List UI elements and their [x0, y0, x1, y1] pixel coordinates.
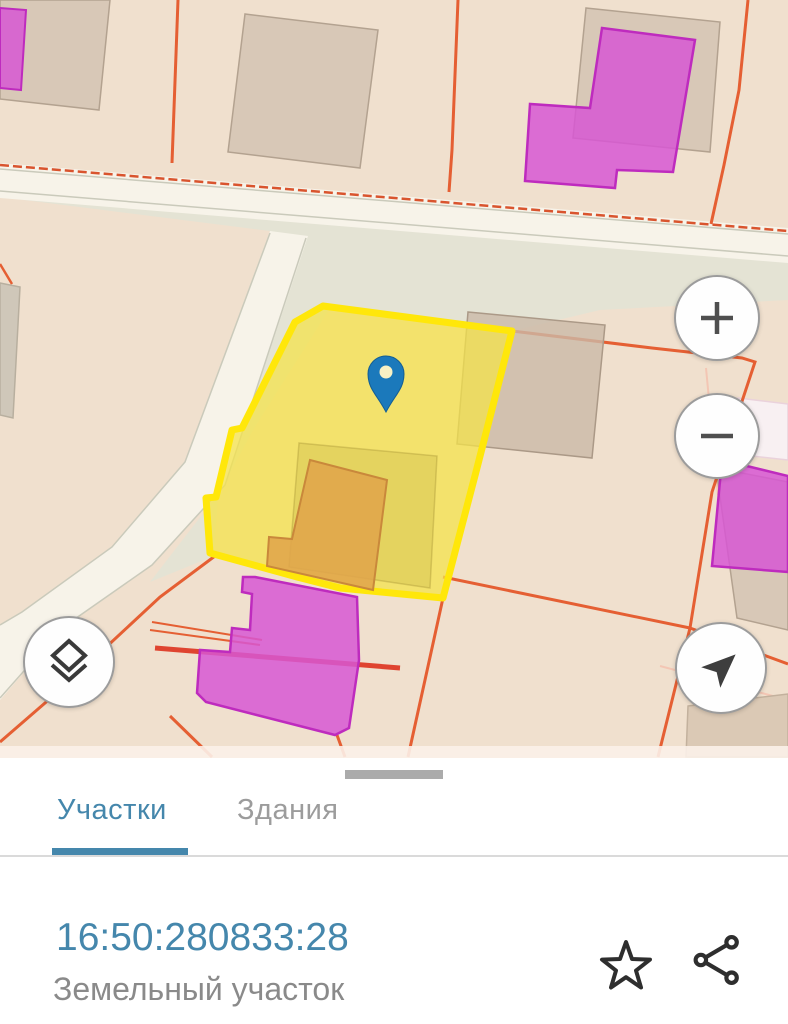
compass-button[interactable]: [675, 622, 767, 714]
share-button[interactable]: [692, 932, 742, 991]
favorite-button[interactable]: [598, 936, 654, 997]
map-edge-fade: [0, 746, 788, 758]
building-gray: [228, 14, 378, 168]
bottom-sheet: Участки Здания 16:50:280833:28 Земельный…: [0, 758, 788, 1024]
minus-icon: [693, 412, 741, 460]
parcel-type-label: Земельный участок: [53, 971, 344, 1008]
share-icon: [692, 932, 742, 988]
plus-icon: [693, 294, 741, 342]
tabs-divider: [0, 855, 788, 857]
layers-button[interactable]: [23, 616, 115, 708]
zoom-out-button[interactable]: [674, 393, 760, 479]
building-magenta: [0, 8, 26, 90]
zoom-in-button[interactable]: [674, 275, 760, 361]
cadastral-map-app: Участки Здания 16:50:280833:28 Земельный…: [0, 0, 788, 1024]
tab-buildings[interactable]: Здания: [237, 794, 338, 827]
drag-handle[interactable]: [345, 770, 443, 779]
cadastral-number-link[interactable]: 16:50:280833:28: [56, 916, 349, 960]
star-icon: [598, 936, 654, 994]
navigation-arrow-icon: [695, 642, 747, 694]
tab-parcels[interactable]: Участки: [57, 794, 167, 827]
layers-icon: [43, 636, 95, 688]
map-view[interactable]: [0, 0, 788, 758]
